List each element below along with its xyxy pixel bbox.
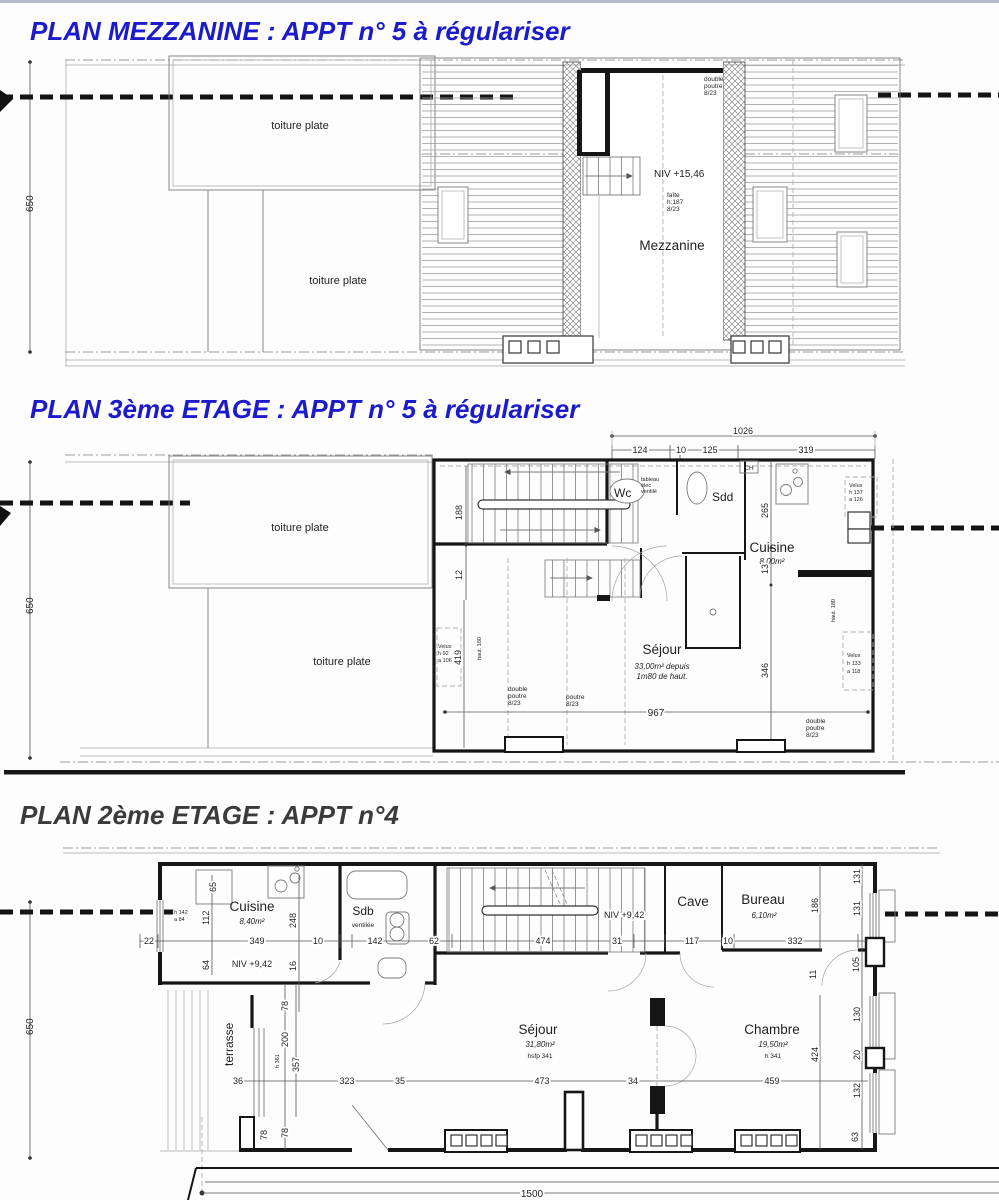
sink-fixture bbox=[386, 912, 409, 944]
dim-650: 650 bbox=[25, 195, 36, 212]
svg-text:12: 12 bbox=[454, 570, 464, 580]
svg-text:1m80 de haut.: 1m80 de haut. bbox=[636, 672, 687, 681]
svg-text:Velux: Velux bbox=[849, 483, 863, 489]
svg-text:6,10m²: 6,10m² bbox=[752, 911, 777, 920]
svg-text:650: 650 bbox=[25, 1018, 36, 1035]
section-arrow-icon bbox=[0, 506, 11, 526]
svg-text:11: 11 bbox=[808, 970, 818, 979]
room-label-cuisine: Cuisine bbox=[749, 540, 794, 555]
svg-text:424: 424 bbox=[810, 1047, 820, 1062]
section-arrow-icon bbox=[0, 90, 13, 112]
svg-text:346: 346 bbox=[760, 663, 770, 678]
svg-text:19,50m²: 19,50m² bbox=[758, 1040, 788, 1049]
plan1-structure bbox=[0, 56, 999, 366]
svg-text:188: 188 bbox=[454, 505, 464, 520]
svg-text:Velux: Velux bbox=[438, 644, 452, 650]
svg-text:105: 105 bbox=[851, 957, 861, 972]
svg-text:474: 474 bbox=[535, 936, 550, 946]
svg-text:265: 265 bbox=[760, 503, 770, 518]
svg-text:65: 65 bbox=[208, 882, 218, 892]
svg-text:h 92: h 92 bbox=[438, 651, 449, 657]
svg-text:36: 36 bbox=[233, 1076, 243, 1086]
room-label-sejour: Séjour bbox=[518, 1022, 558, 1037]
svg-text:13: 13 bbox=[760, 564, 770, 574]
svg-text:78: 78 bbox=[280, 1128, 290, 1138]
svg-text:a 84: a 84 bbox=[174, 917, 185, 923]
svg-text:34: 34 bbox=[628, 1076, 638, 1086]
stove-fixture bbox=[776, 464, 808, 504]
svg-text:319: 319 bbox=[798, 445, 813, 455]
svg-text:31,80m²: 31,80m² bbox=[525, 1040, 555, 1049]
svg-text:142: 142 bbox=[367, 936, 382, 946]
svg-text:h 133: h 133 bbox=[847, 661, 861, 667]
svg-text:a 118: a 118 bbox=[847, 669, 860, 675]
sink-fixture bbox=[687, 472, 707, 504]
svg-text:349: 349 bbox=[249, 936, 264, 946]
svg-text:8/23: 8/23 bbox=[566, 701, 579, 708]
svg-text:35: 35 bbox=[395, 1076, 405, 1086]
room-label-mezzanine: Mezzanine bbox=[639, 238, 704, 253]
svg-text:poutre: poutre bbox=[806, 725, 825, 732]
svg-text:CH: CH bbox=[744, 465, 754, 472]
svg-text:Velux: Velux bbox=[847, 653, 861, 659]
svg-text:124: 124 bbox=[632, 445, 647, 455]
svg-text:8/23: 8/23 bbox=[508, 700, 521, 707]
svg-text:131: 131 bbox=[852, 901, 862, 916]
svg-text:20: 20 bbox=[852, 1050, 862, 1060]
svg-text:poutre: poutre bbox=[508, 693, 527, 700]
svg-text:10: 10 bbox=[676, 445, 686, 455]
svg-text:33,00m² depuis: 33,00m² depuis bbox=[634, 662, 689, 671]
level-label: NIV +15,46 bbox=[654, 169, 705, 180]
svg-text:650: 650 bbox=[25, 597, 36, 614]
room-label-cave: Cave bbox=[677, 894, 709, 909]
balcony-railing bbox=[503, 336, 789, 363]
svg-text:8/23: 8/23 bbox=[806, 732, 819, 739]
bathtub-fixture bbox=[347, 871, 407, 899]
room-label-bureau: Bureau bbox=[741, 892, 785, 907]
svg-text:323: 323 bbox=[339, 1076, 354, 1086]
svg-text:h:187: h:187 bbox=[667, 199, 684, 206]
dim: 1026 bbox=[733, 426, 753, 436]
svg-text:haut. 180: haut. 180 bbox=[477, 637, 483, 660]
roof-label: toiture plate bbox=[271, 522, 328, 534]
room-label-sejour: Séjour bbox=[642, 642, 682, 657]
svg-text:8,40m²: 8,40m² bbox=[240, 917, 265, 926]
svg-text:double: double bbox=[508, 686, 528, 693]
svg-text:10: 10 bbox=[313, 936, 323, 946]
plan3-structure bbox=[0, 848, 999, 1200]
wc-fixture bbox=[378, 958, 406, 978]
svg-text:h 341: h 341 bbox=[765, 1053, 782, 1060]
terrace-decking bbox=[160, 990, 240, 1151]
level-label: NIV +9,42 bbox=[232, 959, 272, 969]
svg-text:132: 132 bbox=[852, 1083, 862, 1098]
svg-text:h 137: h 137 bbox=[849, 490, 863, 496]
roof-label: toiture plate bbox=[271, 120, 328, 132]
svg-text:63: 63 bbox=[850, 1132, 860, 1142]
svg-text:117: 117 bbox=[685, 936, 699, 946]
stairs-down bbox=[545, 560, 640, 597]
floorplan-drawing: PLAN MEZZANINE : APPT n° 5 à régulariser bbox=[0, 0, 999, 1200]
svg-text:332: 332 bbox=[787, 936, 802, 946]
room-label-wc: Wc bbox=[614, 486, 631, 500]
svg-text:8/23: 8/23 bbox=[704, 90, 717, 97]
svg-text:ventilée: ventilée bbox=[352, 922, 375, 929]
svg-text:h 142: h 142 bbox=[174, 910, 188, 916]
svg-text:10: 10 bbox=[723, 936, 733, 946]
plan3-title: PLAN 2ème ETAGE : APPT n°4 bbox=[20, 800, 399, 830]
room-label-cuisine: Cuisine bbox=[229, 899, 274, 914]
svg-text:112: 112 bbox=[201, 911, 211, 925]
svg-text:473: 473 bbox=[534, 1076, 549, 1086]
svg-text:22: 22 bbox=[144, 936, 154, 946]
svg-text:a 106: a 106 bbox=[438, 658, 452, 664]
svg-text:1500: 1500 bbox=[521, 1189, 544, 1200]
svg-text:haut. 180: haut. 180 bbox=[831, 599, 837, 622]
svg-text:16: 16 bbox=[288, 961, 298, 971]
svg-text:186: 186 bbox=[810, 898, 820, 913]
svg-text:130: 130 bbox=[852, 1007, 862, 1022]
svg-text:31: 31 bbox=[612, 936, 622, 946]
svg-text:78: 78 bbox=[259, 1130, 269, 1140]
plan-sheet: PLAN MEZZANINE : APPT n° 5 à régulariser bbox=[0, 0, 999, 1200]
svg-text:248: 248 bbox=[288, 913, 298, 928]
svg-text:8/23: 8/23 bbox=[667, 206, 680, 213]
svg-text:h 361: h 361 bbox=[275, 1054, 281, 1068]
svg-text:125: 125 bbox=[702, 445, 717, 455]
svg-text:967: 967 bbox=[648, 708, 665, 719]
roof-label: toiture plate bbox=[309, 275, 366, 287]
svg-text:double: double bbox=[704, 76, 724, 83]
svg-text:131: 131 bbox=[852, 869, 862, 884]
svg-text:ventilé: ventilé bbox=[641, 489, 657, 495]
svg-text:a 126: a 126 bbox=[849, 497, 863, 503]
svg-text:200: 200 bbox=[280, 1032, 290, 1047]
roof-label: toiture plate bbox=[313, 656, 370, 668]
svg-text:faîte: faîte bbox=[667, 192, 680, 199]
svg-text:double: double bbox=[806, 718, 826, 725]
room-label-sdd: Sdd bbox=[712, 490, 733, 504]
svg-text:62: 62 bbox=[429, 936, 439, 946]
plan1-title: PLAN MEZZANINE : APPT n° 5 à régulariser bbox=[30, 16, 572, 46]
plan2-labels: 1026 124 10 125 319 650 toiture plate to… bbox=[25, 426, 863, 739]
svg-text:hsfp 341: hsfp 341 bbox=[528, 1053, 553, 1060]
room-label-chambre: Chambre bbox=[744, 1022, 800, 1037]
plan2-title: PLAN 3ème ETAGE : APPT n° 5 à régularise… bbox=[30, 394, 581, 424]
svg-text:78: 78 bbox=[280, 1001, 290, 1011]
right-wall-windows bbox=[866, 890, 895, 1134]
room-label-terrasse: terrasse bbox=[222, 1022, 236, 1066]
svg-text:419: 419 bbox=[453, 650, 463, 665]
svg-text:64: 64 bbox=[201, 960, 211, 970]
level-label: NIV +9,42 bbox=[604, 910, 644, 920]
svg-text:357: 357 bbox=[291, 1057, 301, 1072]
room-label-sdb: Sdb bbox=[352, 904, 374, 918]
svg-text:poutre: poutre bbox=[704, 83, 723, 90]
svg-text:poutre: poutre bbox=[566, 694, 585, 701]
svg-text:459: 459 bbox=[764, 1076, 779, 1086]
